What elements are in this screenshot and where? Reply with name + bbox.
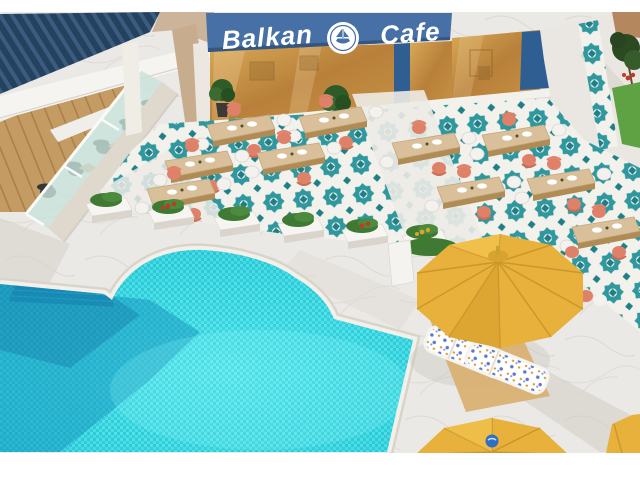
white-pedestal: [388, 240, 414, 286]
render-canvas: Balkan Cafe: [0, 0, 640, 480]
pool-terrace-render: Balkan Cafe: [0, 0, 640, 480]
sailing-ship-logo-icon: [327, 22, 359, 54]
top-white-band: [0, 0, 640, 12]
parasol-finial-ball: [486, 435, 499, 448]
sign-text-cafe: Cafe: [379, 16, 441, 50]
bottom-white-band: [0, 453, 640, 480]
sign-text-balkan: Balkan: [221, 19, 314, 55]
water-highlight: [110, 330, 410, 450]
